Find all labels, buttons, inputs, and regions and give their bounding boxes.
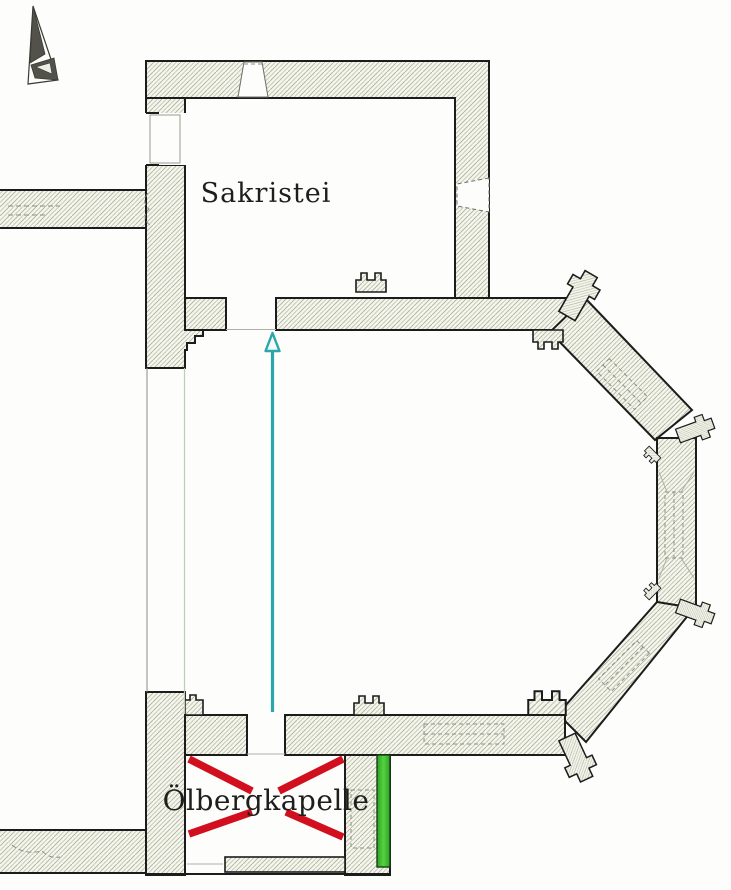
wall-choir-north-right [276,298,575,330]
wall-choir-south-left [185,715,247,755]
floor-plan-page: Sakristei Ölbergkapelle [0,0,731,890]
floor-plan-svg: Sakristei Ölbergkapelle [0,0,731,890]
sacristy-label: Sakristei [201,178,332,209]
wall-choir-south-right [285,715,565,755]
wall-chapel-south [225,857,345,872]
wall-sacristy-west-upper [146,98,185,114]
entrance-marker-bar [377,755,390,867]
wall-choir-east [657,438,696,608]
wall-west-arm [0,190,146,228]
niche-east-wall [457,178,489,212]
wall-choir-north-left [185,298,226,330]
wall-south-arm [0,830,146,873]
chapel-label: Ölbergkapelle [163,783,370,817]
